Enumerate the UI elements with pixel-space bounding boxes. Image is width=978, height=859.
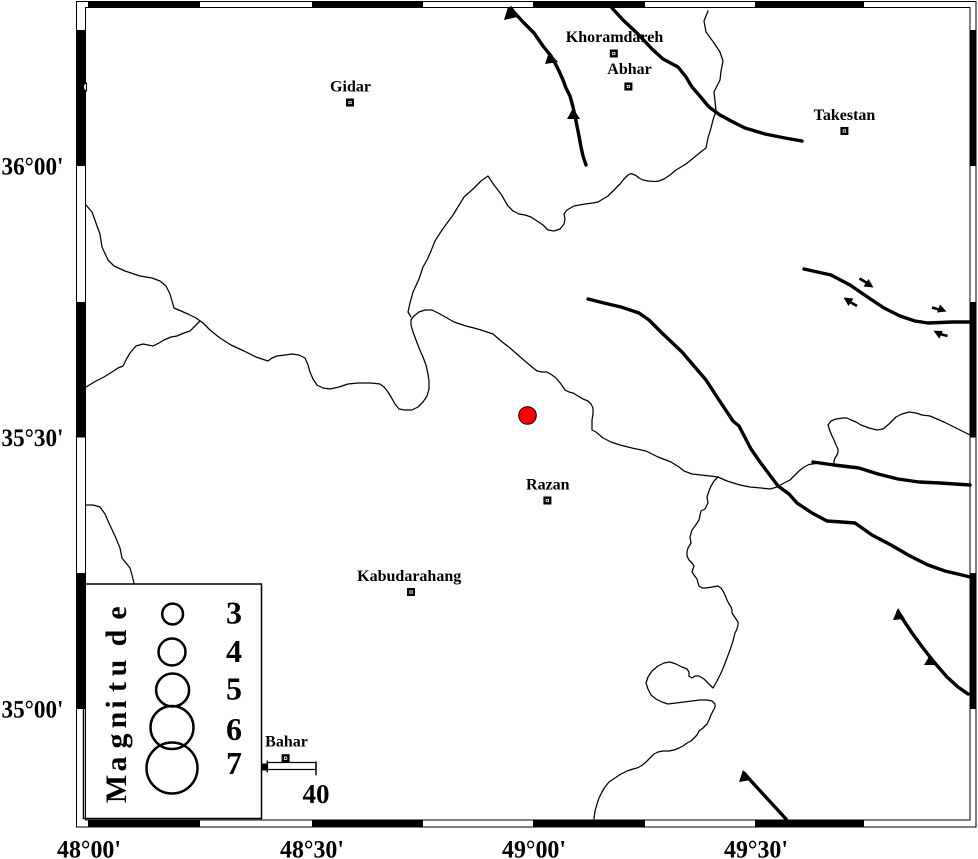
svg-text:49°00': 49°00'	[502, 837, 566, 859]
svg-text:Gidar: Gidar	[330, 79, 371, 96]
svg-text:40: 40	[303, 779, 330, 809]
svg-text:M: M	[100, 775, 133, 803]
svg-text:n: n	[100, 711, 133, 728]
svg-text:48°30': 48°30'	[280, 837, 344, 859]
svg-text:d: d	[100, 629, 133, 646]
svg-text:5: 5	[226, 671, 242, 707]
svg-text:49°30': 49°30'	[724, 837, 788, 859]
svg-text:48°00': 48°00'	[57, 837, 121, 859]
svg-text:a: a	[100, 757, 133, 772]
svg-text:35°00': 35°00'	[2, 697, 64, 724]
svg-text:Takestan: Takestan	[814, 107, 876, 124]
svg-text:Razan: Razan	[526, 477, 570, 494]
svg-text:35°30': 35°30'	[2, 425, 64, 452]
svg-text:7: 7	[226, 745, 242, 781]
svg-text:6: 6	[226, 711, 242, 747]
svg-text:Abhar: Abhar	[607, 61, 651, 78]
svg-text:3: 3	[226, 595, 242, 631]
svg-text:Kabudarahang: Kabudarahang	[357, 568, 461, 585]
svg-text:i: i	[100, 700, 133, 708]
svg-text:4: 4	[226, 633, 242, 669]
svg-text:g: g	[100, 734, 133, 749]
svg-text:e: e	[100, 606, 133, 619]
svg-text:u: u	[100, 660, 133, 677]
svg-text:Bahar: Bahar	[265, 734, 308, 751]
svg-text:36°00': 36°00'	[2, 154, 64, 181]
svg-text:Khoramdareh: Khoramdareh	[566, 29, 664, 46]
svg-text:t: t	[100, 682, 133, 692]
